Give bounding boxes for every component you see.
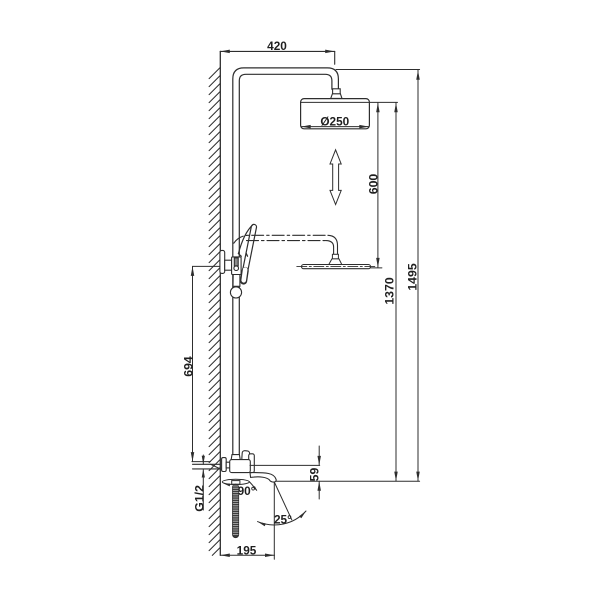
svg-text:G1/2: G1/2 (192, 485, 206, 512)
svg-text:59: 59 (308, 468, 322, 482)
svg-text:25°: 25° (274, 513, 292, 527)
svg-text:600: 600 (366, 174, 380, 195)
svg-text:420: 420 (267, 39, 287, 53)
svg-text:694: 694 (181, 356, 195, 377)
svg-text:1370: 1370 (383, 277, 397, 305)
svg-text:1495: 1495 (406, 263, 420, 291)
svg-text:Ø250: Ø250 (320, 115, 349, 129)
svg-text:195: 195 (237, 543, 257, 557)
svg-text:90°: 90° (238, 484, 256, 498)
